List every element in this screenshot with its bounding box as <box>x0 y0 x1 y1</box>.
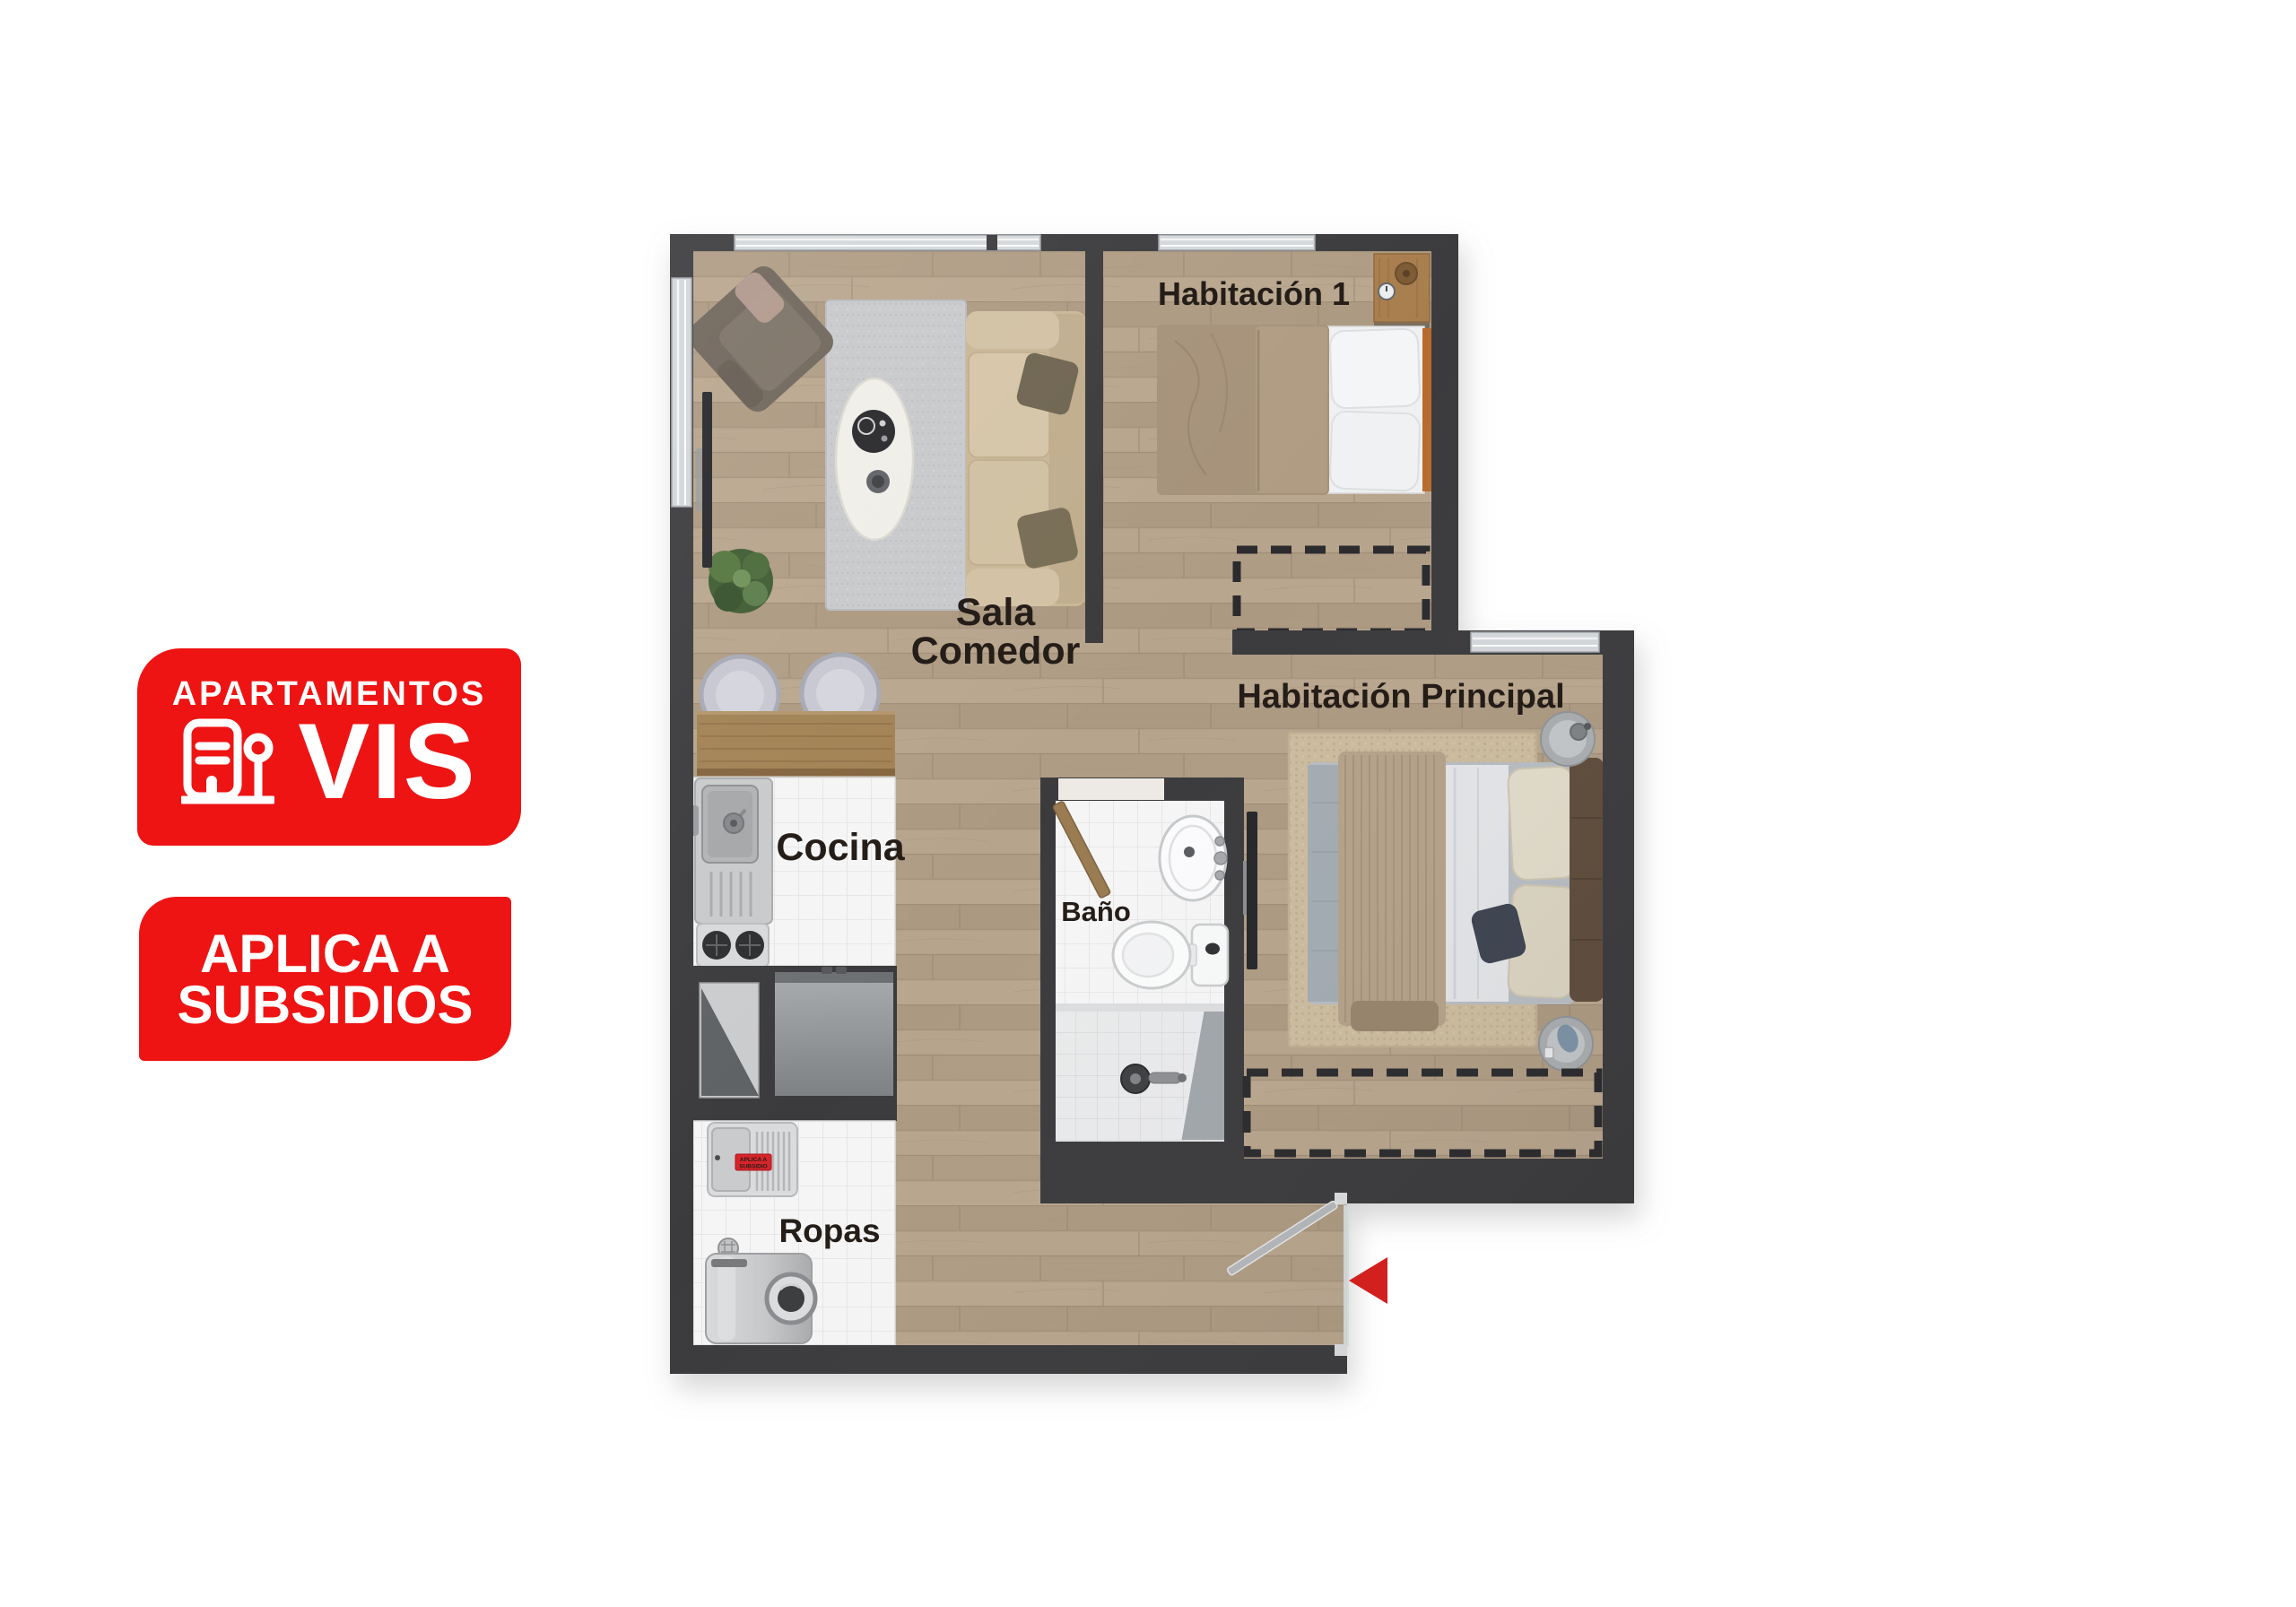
badge-sub-line2: SUBSIDIOS <box>177 979 473 1030</box>
bathroom-label: Baño <box>1061 896 1131 927</box>
entry-arrow <box>1349 1257 1387 1304</box>
badge-sub-line1: APLICA A <box>200 928 450 979</box>
lighting-overlay <box>670 234 1634 1374</box>
badge-apartamentos-vis: APARTAMENTOS VIS <box>137 648 521 846</box>
laundry-label: Ropas <box>778 1212 880 1249</box>
badge-vis-big-label: VIS <box>298 716 476 807</box>
kitchen-label: Cocina <box>776 826 905 869</box>
living-label-line1: Sala <box>956 591 1037 634</box>
master-label: Habitación Principal <box>1237 678 1564 716</box>
badge-aplica-subsidios: APLICA A SUBSIDIOS <box>139 897 511 1061</box>
living-label-line2: Comedor <box>911 630 1081 673</box>
apartment-building-icon <box>181 718 274 804</box>
page: APLICA A SUBSIDIO <box>0 0 2296 1607</box>
bedroom1-label: Habitación 1 <box>1158 275 1350 312</box>
